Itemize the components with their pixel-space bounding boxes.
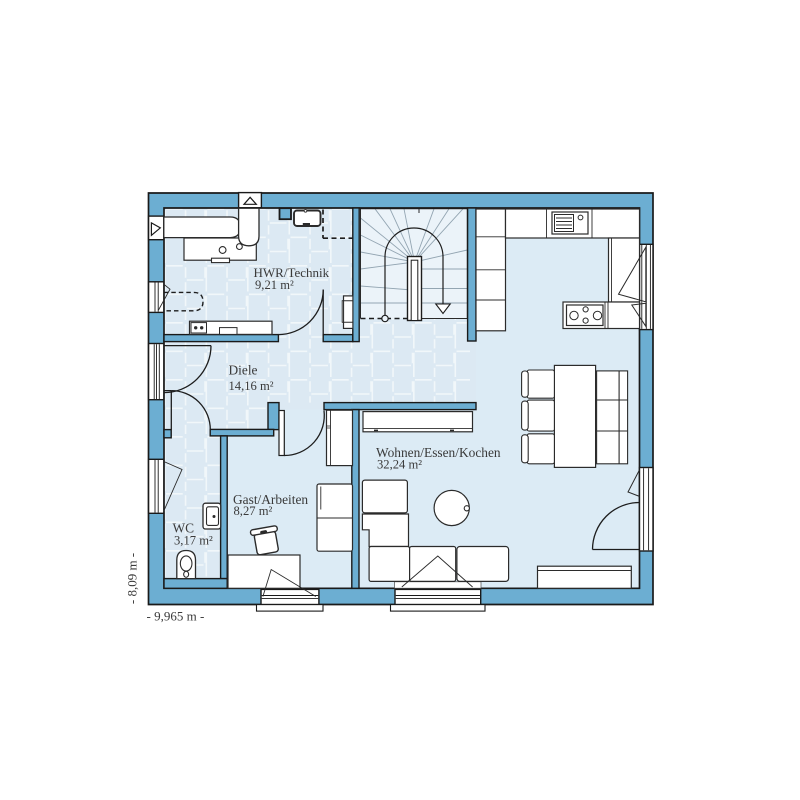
svg-text:3,17 m²: 3,17 m² <box>174 534 213 548</box>
svg-text:9,21 m²: 9,21 m² <box>255 278 294 292</box>
svg-text:32,24 m²: 32,24 m² <box>377 458 422 472</box>
svg-text:Diele: Diele <box>229 363 258 378</box>
svg-text:8,27 m²: 8,27 m² <box>234 504 273 518</box>
svg-text:14,16 m²: 14,16 m² <box>229 379 274 393</box>
svg-text:- 9,965 m -: - 9,965 m - <box>147 609 205 624</box>
svg-text:- 8,09 m -: - 8,09 m - <box>125 553 140 604</box>
